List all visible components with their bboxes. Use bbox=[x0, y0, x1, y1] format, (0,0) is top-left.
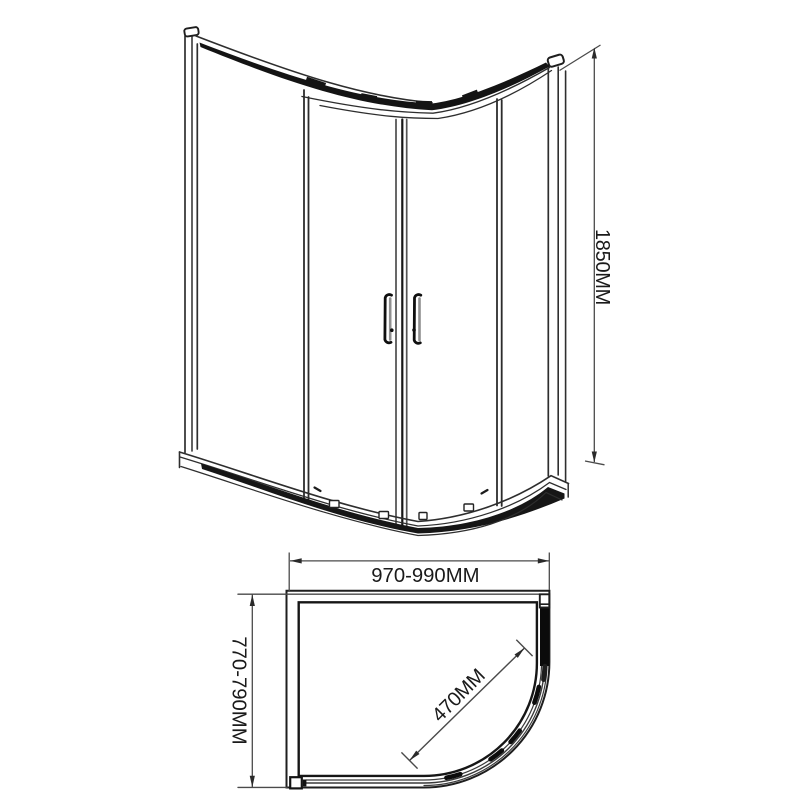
svg-text:1850MM: 1850MM bbox=[591, 229, 613, 305]
svg-text:770-790MM: 770-790MM bbox=[228, 636, 250, 744]
svg-text:970-990MM: 970-990MM bbox=[371, 565, 479, 587]
